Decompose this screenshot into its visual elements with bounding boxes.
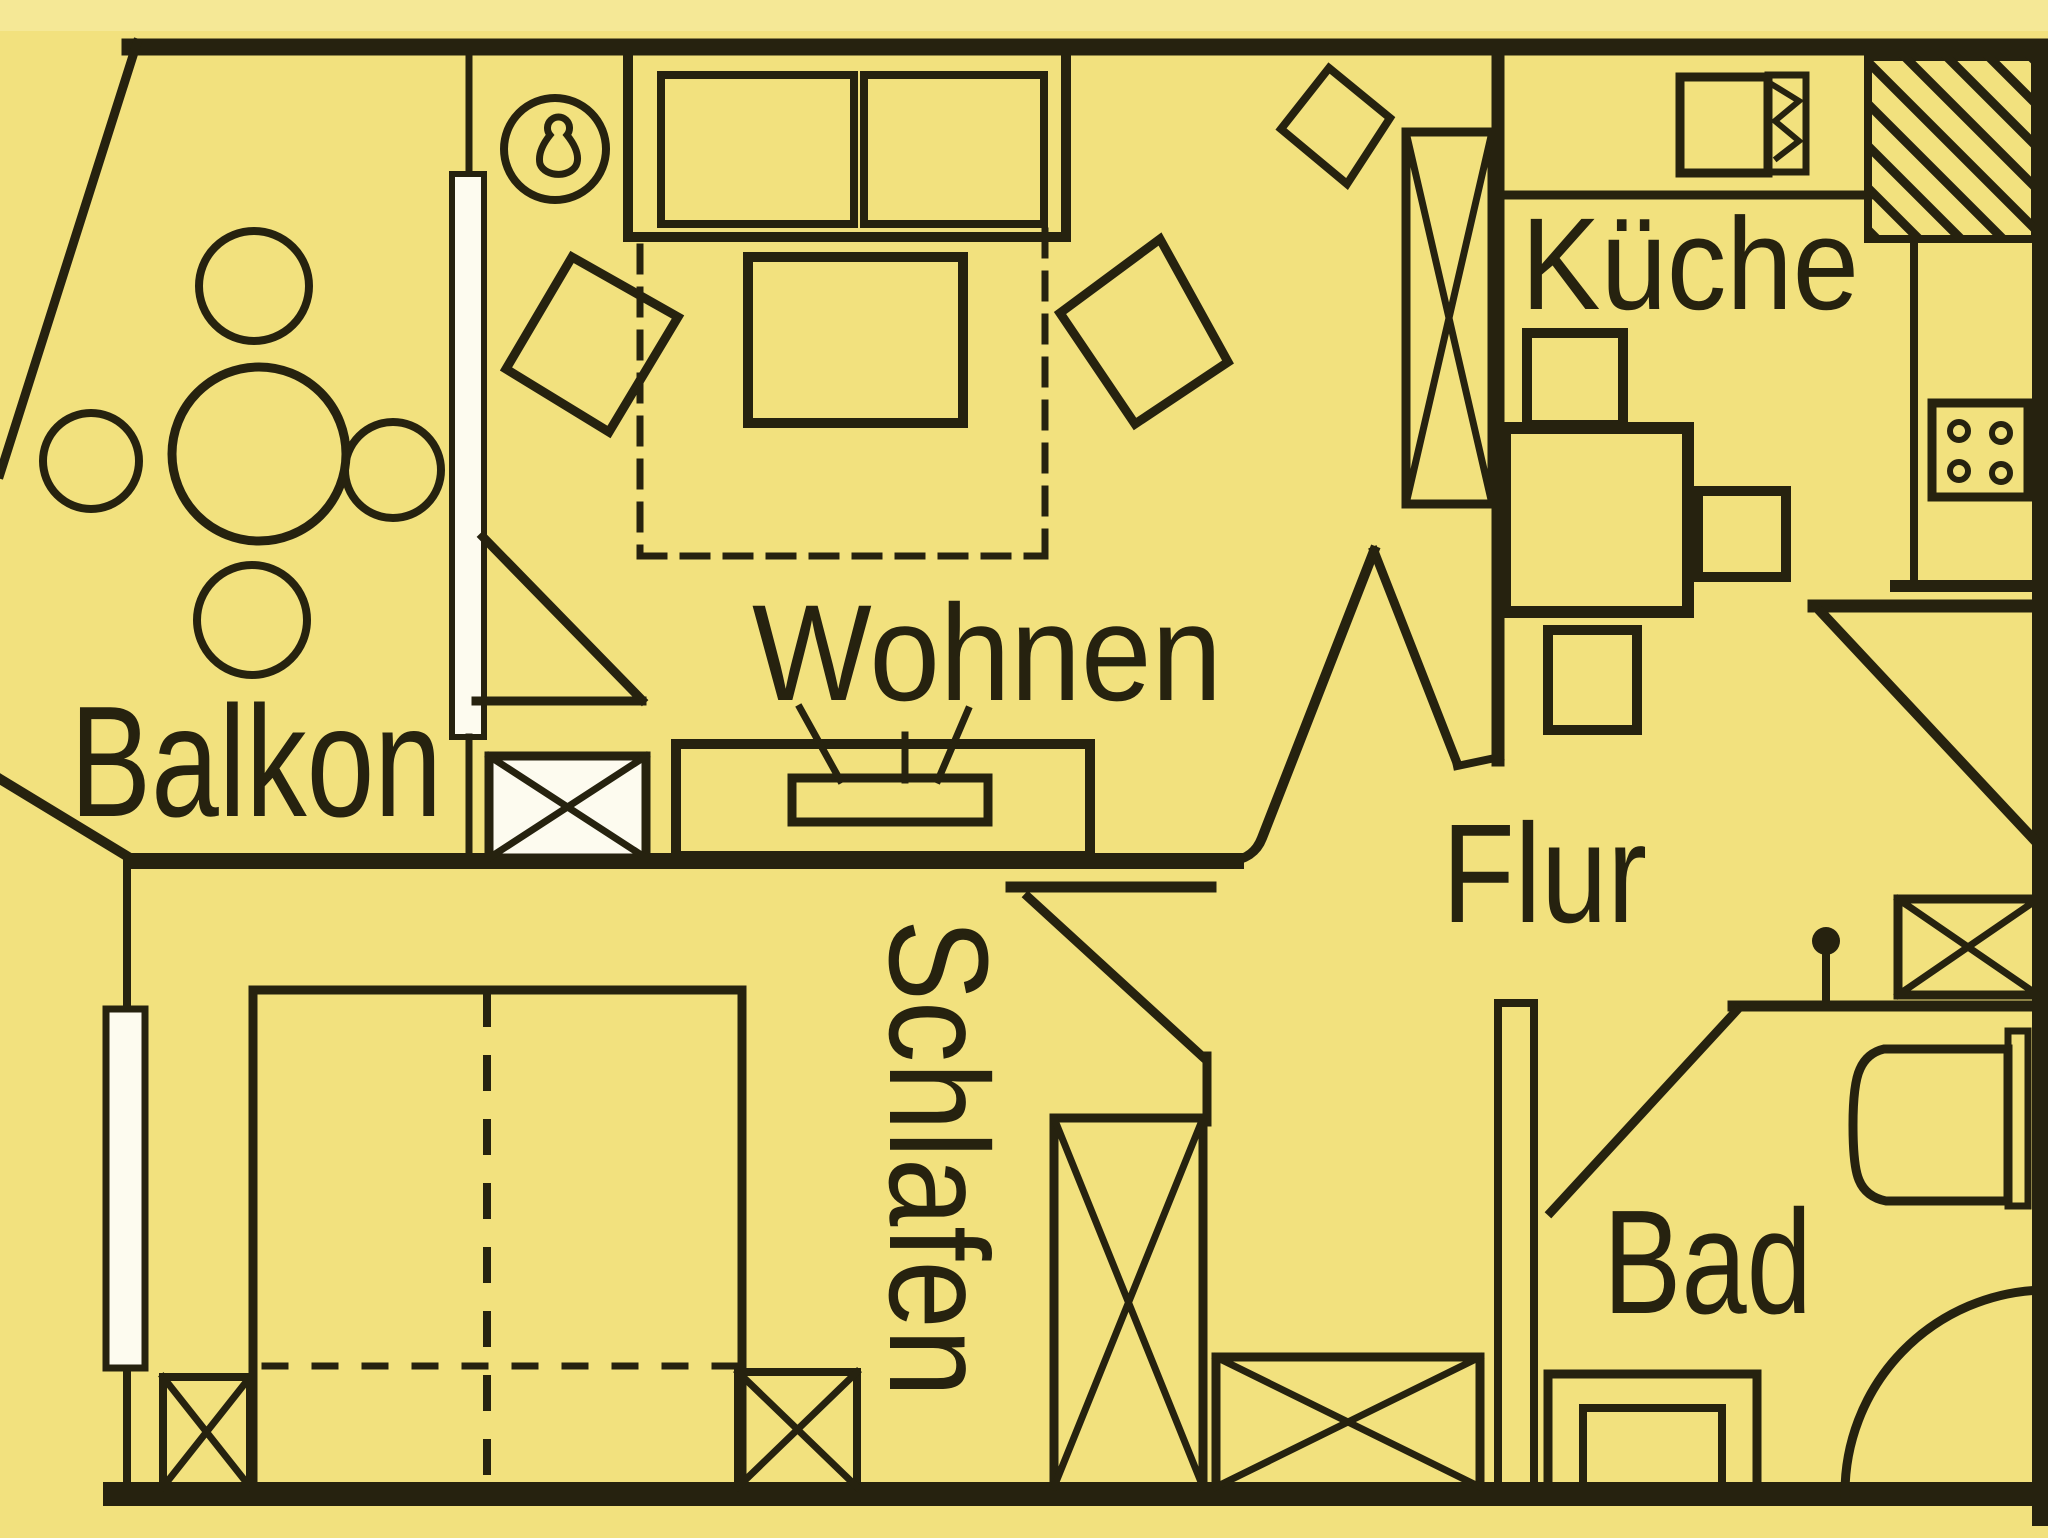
svg-text:Flur: Flur bbox=[1442, 794, 1647, 952]
svg-text:Balkon: Balkon bbox=[70, 674, 442, 850]
svg-text:Wohnen: Wohnen bbox=[752, 577, 1222, 730]
svg-text:Küche: Küche bbox=[1521, 190, 1859, 337]
svg-text:Bad: Bad bbox=[1603, 1180, 1812, 1345]
svg-text:Schlafen: Schlafen bbox=[860, 919, 1018, 1397]
